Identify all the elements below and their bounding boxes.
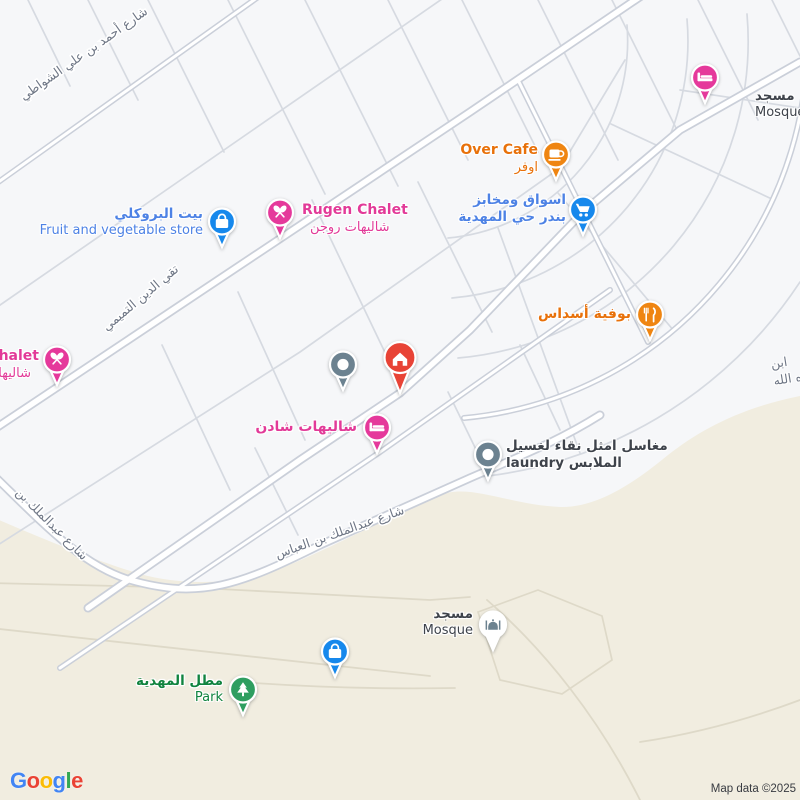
hotel-marker-top[interactable]	[688, 62, 722, 106]
cafe-marker-over-cafe[interactable]	[539, 139, 573, 183]
poi-label-mosque-top[interactable]: مسجد Mosque	[755, 88, 800, 121]
restaurant-marker-asdas[interactable]	[633, 299, 667, 343]
generic-poi-marker[interactable]	[326, 349, 360, 393]
home-location-marker[interactable]	[377, 339, 423, 397]
dot-icon	[337, 359, 348, 370]
map-canvas[interactable]: شارع أحمد بن علي الشواطي تقي الدين التمي…	[0, 0, 800, 800]
poi-label-asdas-buffet[interactable]: بوفية أسداس	[538, 306, 631, 324]
poi-label-laundry[interactable]: مغاسل امثل نقاء لغسيل laundry الملابس	[506, 438, 668, 472]
chalet-marker-left[interactable]	[40, 344, 74, 388]
google-logo[interactable]: Google	[10, 768, 83, 794]
poi-label-shaden-chalets[interactable]: شاليهات شادن	[255, 419, 357, 437]
dot-icon	[482, 449, 493, 460]
map-attribution: Map data ©2025	[711, 783, 796, 795]
store-marker-bottom[interactable]	[318, 636, 352, 680]
poi-label-market[interactable]: اسواق ومخابز بندر حي المهدية	[458, 192, 566, 226]
poi-label-rugen-chalet[interactable]: Rugen Chalet شاليهات روجن	[302, 202, 408, 236]
street-label-tamimi: تقي الدين التميمي	[99, 261, 182, 334]
park-marker[interactable]	[226, 674, 260, 718]
street-label-fragment: ابن ه الله	[770, 352, 800, 388]
chalet-marker-rugen[interactable]	[263, 197, 297, 241]
poi-label-chalet-left[interactable]: halet شاليها	[0, 348, 39, 382]
store-marker-broccoli[interactable]	[205, 206, 239, 250]
market-marker[interactable]	[566, 194, 600, 238]
hotel-marker-shaden[interactable]	[360, 412, 394, 456]
poi-label-over-cafe[interactable]: Over Cafe اوفر	[460, 142, 538, 176]
road-network: شارع أحمد بن علي الشواطي تقي الدين التمي…	[0, 0, 800, 800]
mosque-marker-bottom[interactable]	[476, 609, 510, 653]
laundry-marker[interactable]	[471, 439, 505, 483]
poi-label-park[interactable]: مطل المهدية Park	[136, 673, 223, 706]
poi-label-broccoli-store[interactable]: بيت البروكلي Fruit and vegetable store	[40, 206, 203, 239]
poi-label-mosque-bottom[interactable]: مسجد Mosque	[423, 606, 473, 639]
